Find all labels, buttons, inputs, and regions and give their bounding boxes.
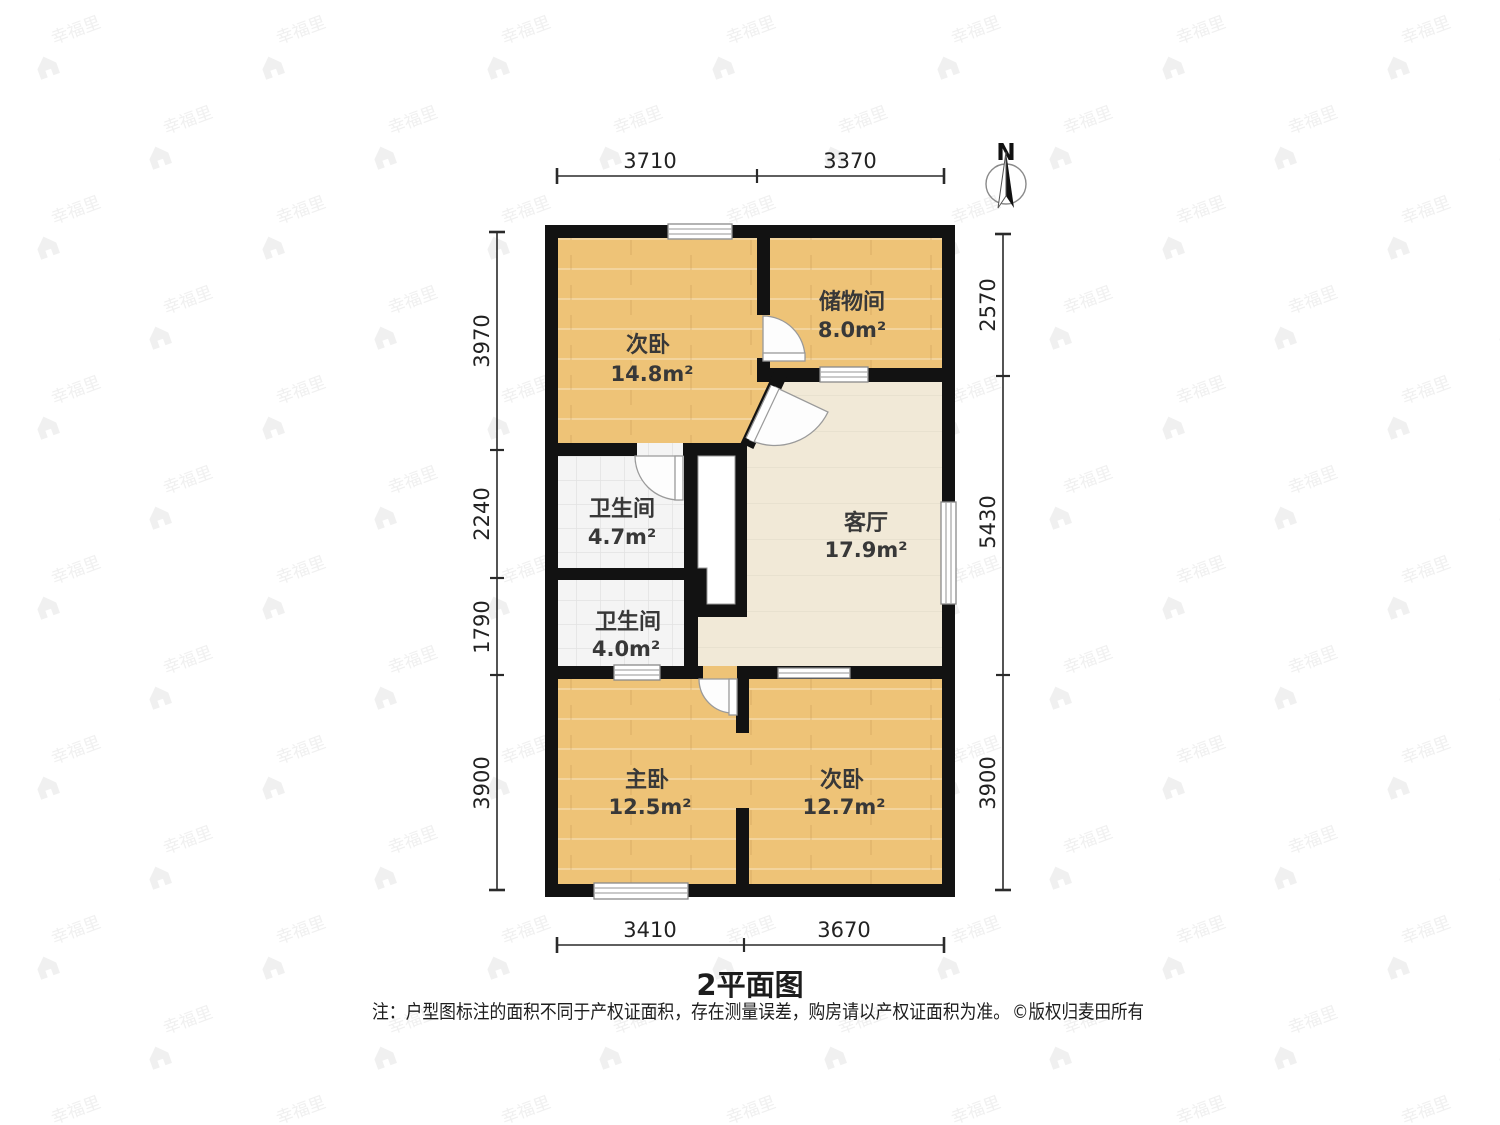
floorplan-page: 幸福里 幸福里 xyxy=(0,0,1500,1125)
svg-text:17.9m²: 17.9m² xyxy=(825,538,908,562)
dim-top-2: 3370 xyxy=(823,149,876,173)
svg-text:卫生间: 卫生间 xyxy=(595,610,661,635)
svg-text:卫生间: 卫生间 xyxy=(589,497,655,522)
svg-text:8.0m²: 8.0m² xyxy=(818,318,886,342)
window-top xyxy=(668,224,732,239)
window-living-right xyxy=(941,502,956,604)
wall-bath-divider xyxy=(545,568,684,580)
svg-text:客厅: 客厅 xyxy=(844,510,888,536)
window-bottom xyxy=(594,883,688,899)
floorplan-canvas: 幸福里 幸福里 xyxy=(0,0,1500,1125)
svg-text:14.8m²: 14.8m² xyxy=(611,362,694,386)
dim-bottom-1: 3410 xyxy=(623,918,676,942)
dim-right-1: 2570 xyxy=(976,278,1000,331)
dim-right-2: 5430 xyxy=(976,495,1000,548)
svg-text:主卧: 主卧 xyxy=(625,768,669,793)
wall-outer-left xyxy=(545,225,558,897)
wall-storage-left-upper xyxy=(757,238,770,315)
wall-bath-upper-top xyxy=(545,443,637,456)
dim-right-3: 3900 xyxy=(976,756,1000,809)
wall-bath-right xyxy=(684,443,698,679)
window-storage-bottom xyxy=(820,367,868,382)
dim-bottom-2: 3670 xyxy=(817,918,870,942)
dim-top-1: 3710 xyxy=(623,149,676,173)
wall-outer-top xyxy=(545,225,955,238)
svg-text:4.0m²: 4.0m² xyxy=(592,637,660,661)
svg-text:12.5m²: 12.5m² xyxy=(609,795,692,819)
svg-text:储物间: 储物间 xyxy=(819,289,885,315)
dim-left-4: 3900 xyxy=(470,756,494,809)
disclaimer-note: 注：户型图标注的面积不同于产权证面积，存在测量误差，购房请以产权证面积为准。 xyxy=(372,1001,1010,1023)
wall-bedroom-divider-lower xyxy=(736,808,749,884)
page-title: 2平面图 xyxy=(696,968,803,1002)
svg-text:12.7m²: 12.7m² xyxy=(803,795,886,819)
svg-text:4.7m²: 4.7m² xyxy=(588,525,656,549)
window-bath-lower xyxy=(614,665,660,680)
dim-left-3: 1790 xyxy=(470,600,494,653)
dim-left-2: 2240 xyxy=(470,487,494,540)
dim-left-1: 3970 xyxy=(470,314,494,367)
copyright-note: ©版权归麦田所有 xyxy=(1012,1001,1144,1023)
window-living-bedroom xyxy=(778,668,850,678)
svg-text:次卧: 次卧 xyxy=(626,332,670,358)
svg-text:次卧: 次卧 xyxy=(820,767,864,793)
wall-bedroom-divider-upper xyxy=(736,679,749,733)
